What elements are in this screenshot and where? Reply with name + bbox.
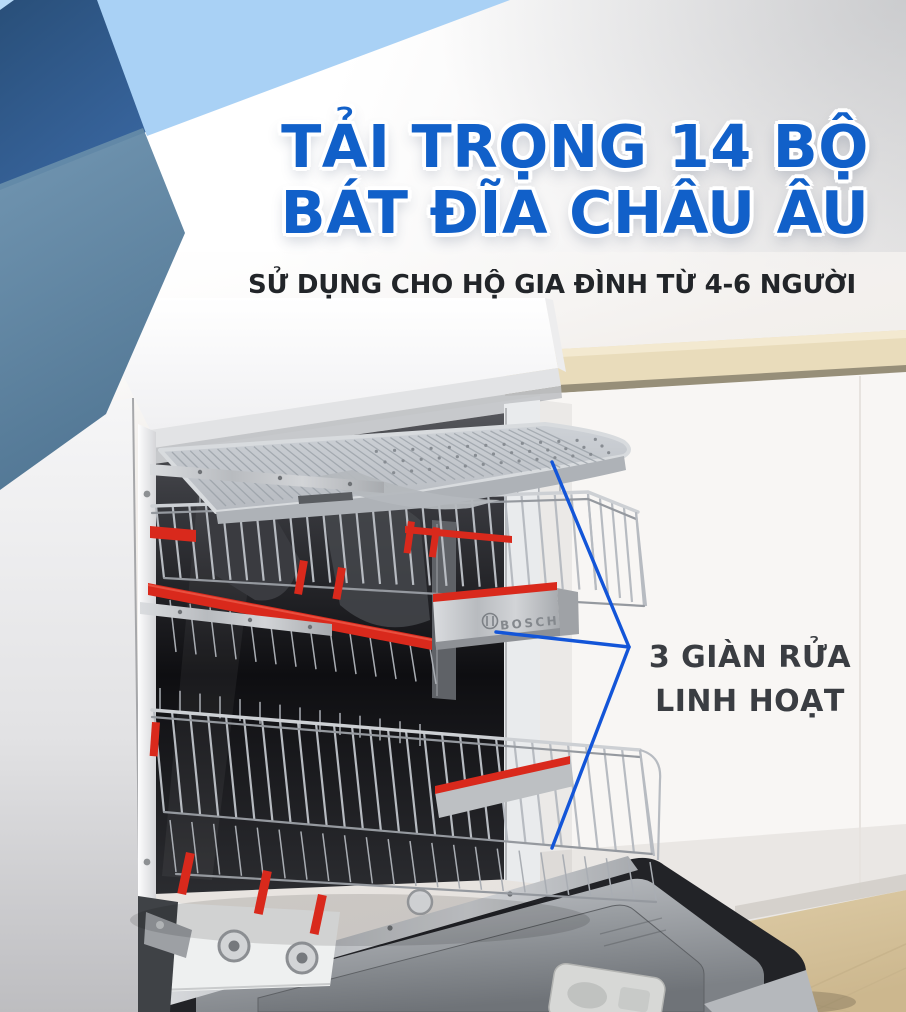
frame-screw: [144, 491, 151, 498]
rack-roller-3: [408, 890, 432, 914]
promo-banner: BOSCH TẢI TRỌNG 1: [0, 0, 906, 1012]
hero-title-line2: BÁT ĐĨA CHÂU ÂU: [225, 180, 906, 246]
callout-text: 3 GIÀN RỬA LINH HOẠT: [638, 636, 862, 723]
hero-title: TẢI TRỌNG 14 BỘ BÁT ĐĨA CHÂU ÂU: [225, 114, 906, 246]
frame-screw: [144, 859, 151, 866]
hero-title-line1: TẢI TRỌNG 14 BỘ: [225, 114, 906, 180]
callout-text-line1: 3 GIÀN RỬA: [638, 636, 862, 680]
callout-text-line2: LINH HOẠT: [638, 680, 862, 724]
rack-shadow: [130, 894, 590, 946]
hero-subtitle: SỬ DỤNG CHO HỘ GIA ĐÌNH TỪ 4-6 NGƯỜI: [222, 270, 882, 300]
left-cabinet-panel: [0, 398, 141, 1012]
